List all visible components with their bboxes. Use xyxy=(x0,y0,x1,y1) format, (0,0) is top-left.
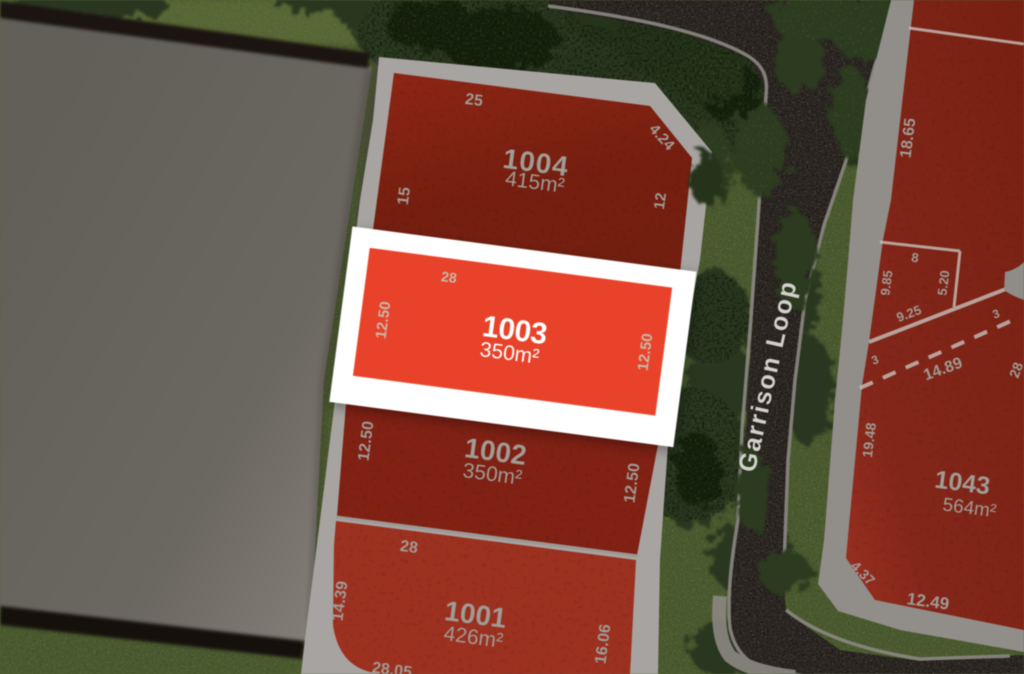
svg-text:28: 28 xyxy=(399,538,419,557)
svg-text:9.85: 9.85 xyxy=(878,269,896,296)
svg-text:25: 25 xyxy=(464,91,484,110)
svg-text:15: 15 xyxy=(395,186,414,206)
svg-text:5.20: 5.20 xyxy=(935,269,953,296)
svg-text:12: 12 xyxy=(651,192,670,211)
svg-text:28: 28 xyxy=(440,268,458,286)
